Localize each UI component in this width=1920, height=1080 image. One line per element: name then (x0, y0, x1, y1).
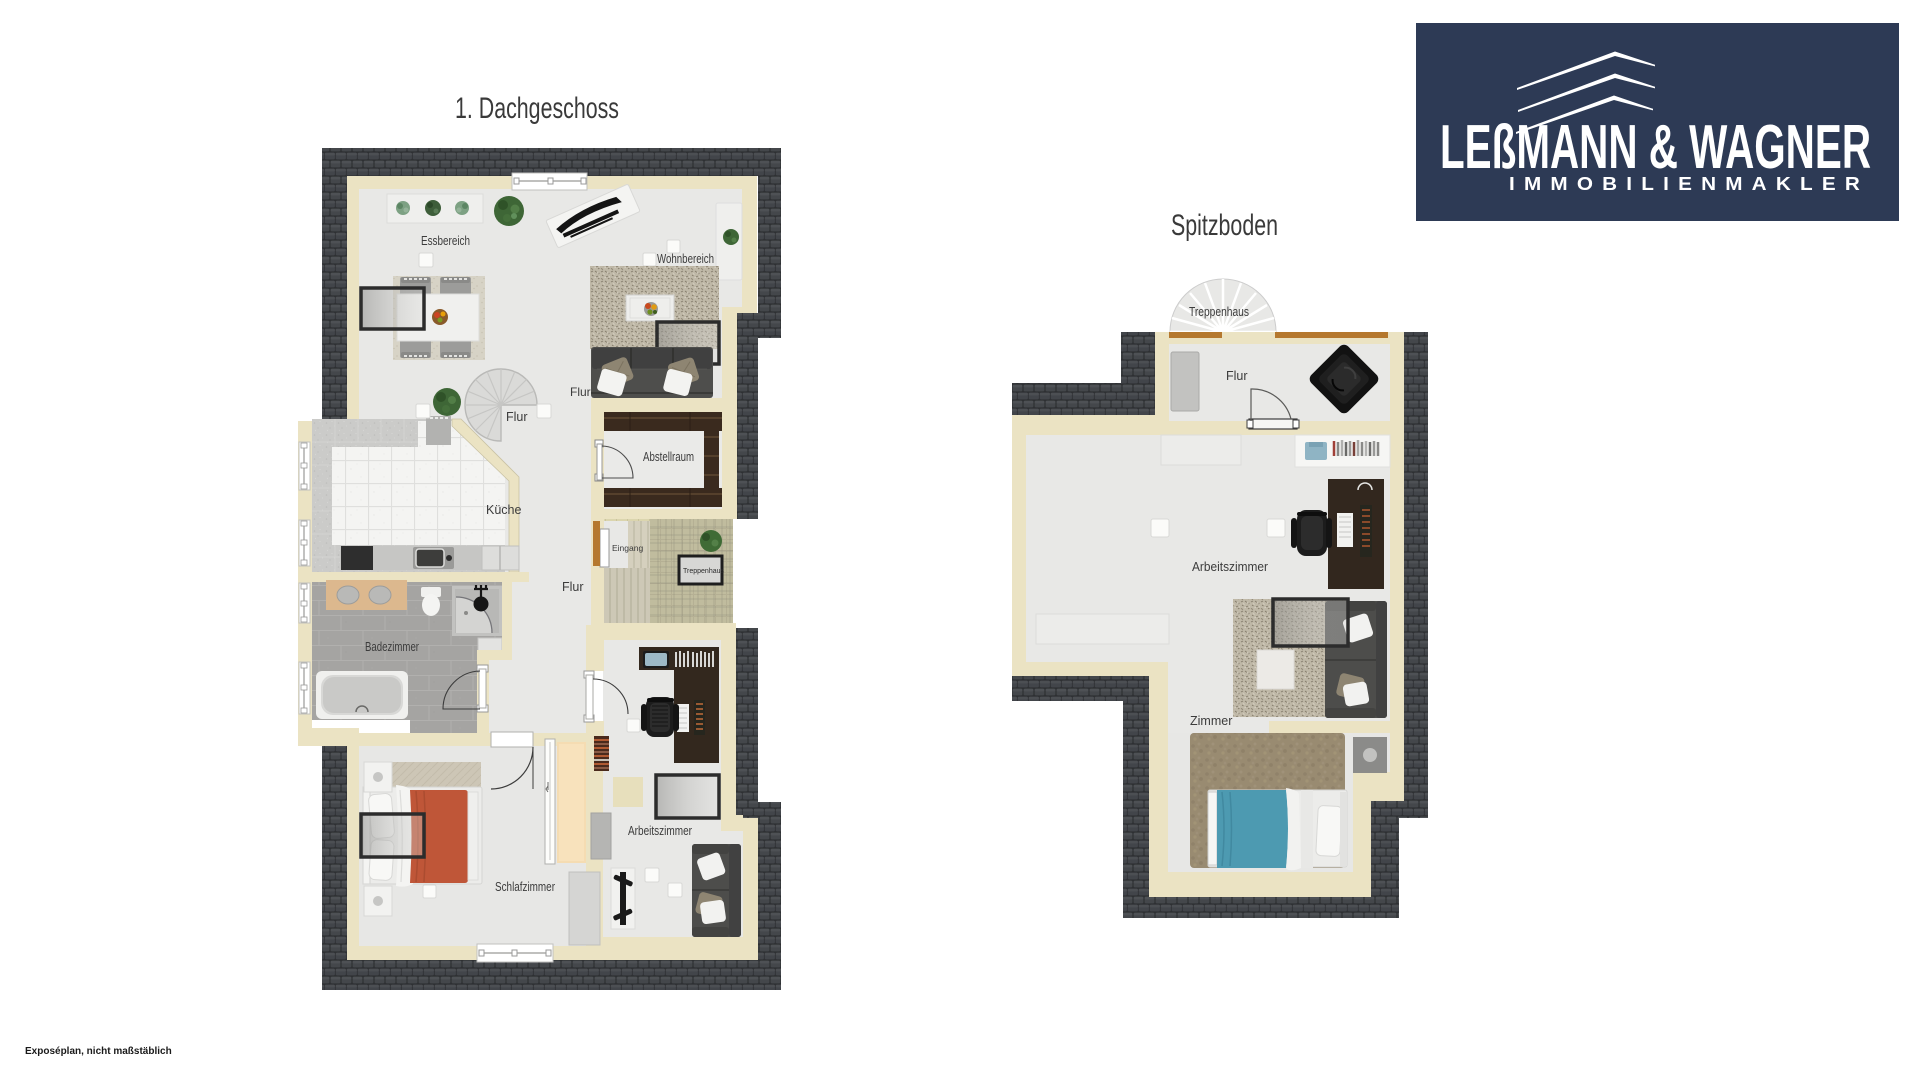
svg-text:Küche: Küche (486, 503, 521, 517)
svg-text:Flur: Flur (506, 410, 528, 424)
svg-text:Eingang: Eingang (612, 543, 643, 553)
svg-text:LEßMANN & WAGNER: LEßMANN & WAGNER (1440, 113, 1871, 182)
svg-text:1. Dachgeschoss: 1. Dachgeschoss (455, 92, 619, 125)
svg-text:Spitzboden: Spitzboden (1171, 209, 1278, 242)
svg-text:Arbeitszimmer: Arbeitszimmer (1192, 560, 1268, 574)
svg-text:Essbereich: Essbereich (421, 234, 470, 248)
svg-text:Schlafzimmer: Schlafzimmer (495, 880, 555, 894)
svg-text:Treppenhaus: Treppenhaus (683, 568, 724, 575)
svg-text:IMMOBILIENMAKLER: IMMOBILIENMAKLER (1509, 174, 1869, 194)
svg-text:Zimmer: Zimmer (1190, 714, 1232, 728)
svg-text:Abstellraum: Abstellraum (643, 450, 694, 464)
svg-text:Treppenhaus: Treppenhaus (1189, 305, 1249, 319)
svg-text:Flur: Flur (570, 385, 591, 399)
svg-text:Arbeitszimmer: Arbeitszimmer (628, 824, 692, 838)
svg-text:Flur: Flur (562, 580, 584, 594)
svg-text:Exposéplan, nicht maßstäblich: Exposéplan, nicht maßstäblich (25, 1046, 172, 1057)
svg-text:Wohnbereich: Wohnbereich (657, 252, 714, 266)
svg-text:Flur: Flur (1226, 369, 1248, 383)
svg-text:Badezimmer: Badezimmer (365, 640, 419, 654)
